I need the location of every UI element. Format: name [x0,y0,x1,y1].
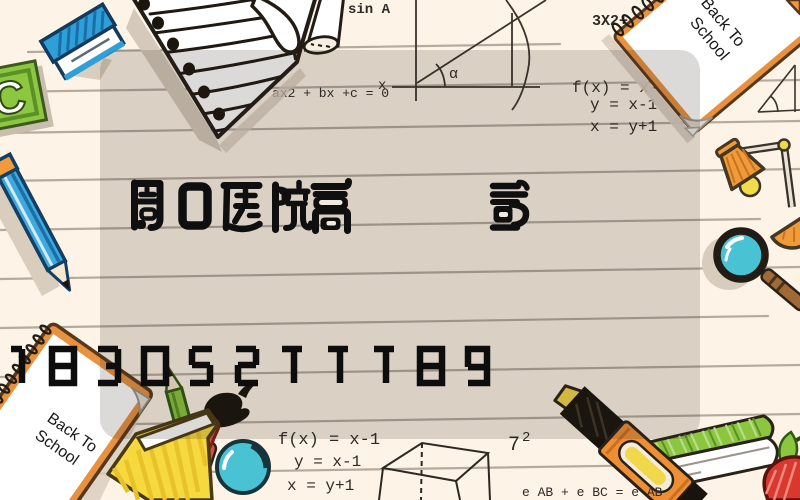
svg-text:e AB + e BC = e AB: e AB + e BC = e AB [522,485,663,500]
svg-text:y = x-1: y = x-1 [294,453,361,471]
svg-text:x = y+1: x = y+1 [287,477,354,495]
svg-text:sin A: sin A [348,2,391,18]
